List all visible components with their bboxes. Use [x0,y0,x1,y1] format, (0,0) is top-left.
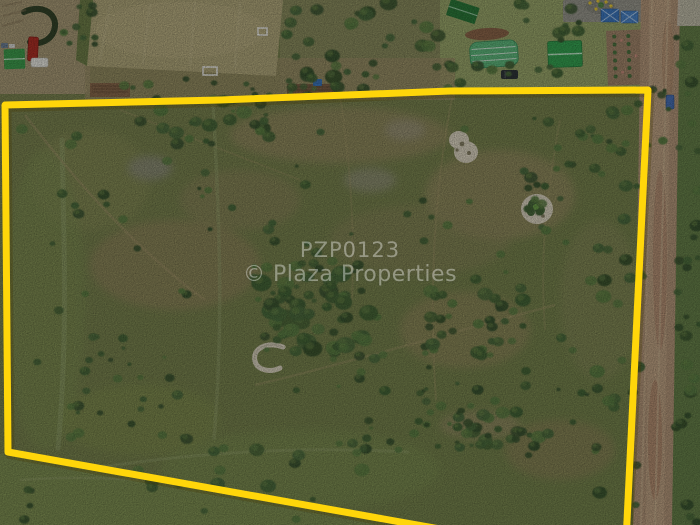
photo-grain [0,0,700,525]
aerial-photo: PZP0123 © Plaza Properties [0,0,700,525]
aerial-photo-scene [0,0,700,525]
